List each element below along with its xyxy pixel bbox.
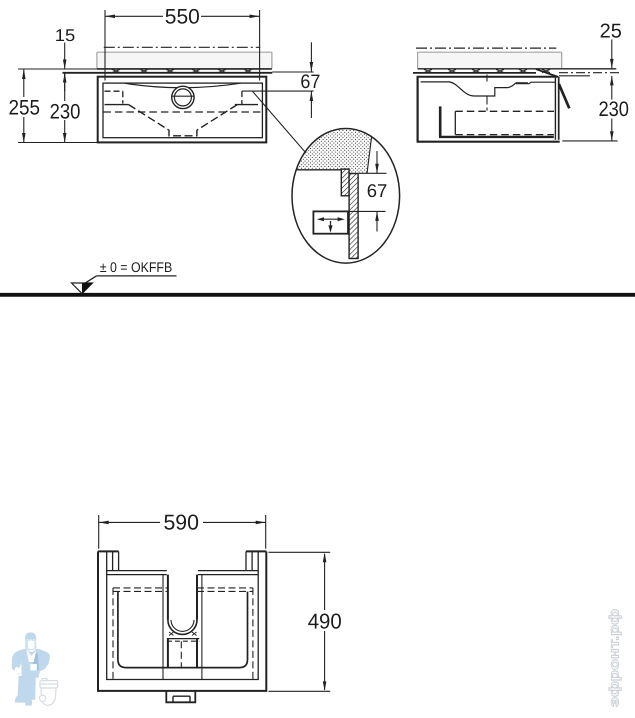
svg-text:25: 25 xyxy=(600,20,622,42)
svg-text:230: 230 xyxy=(50,100,81,123)
svg-text:230: 230 xyxy=(598,98,629,121)
svg-text:255: 255 xyxy=(9,97,41,120)
svg-text:67: 67 xyxy=(300,71,320,93)
svg-text:15: 15 xyxy=(55,26,76,45)
svg-text:эфронт.рф: эфронт.рф xyxy=(607,609,622,707)
svg-text:590: 590 xyxy=(163,510,199,534)
svg-text:± 0 = OKFFB: ± 0 = OKFFB xyxy=(100,259,173,275)
svg-text:67: 67 xyxy=(367,180,388,201)
svg-text:490: 490 xyxy=(308,609,342,633)
svg-text:550: 550 xyxy=(165,6,200,29)
